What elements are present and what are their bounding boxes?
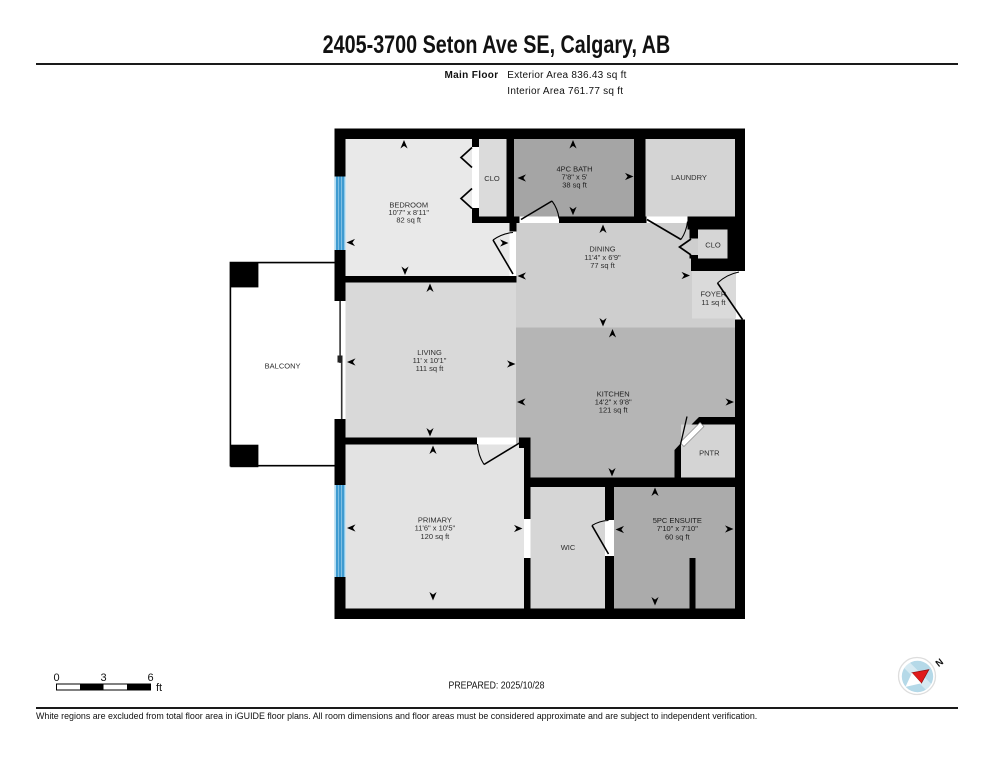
svg-text:38 sq ft: 38 sq ft [562,181,588,190]
svg-text:LAUNDRY: LAUNDRY [671,173,707,182]
svg-text:111 sq ft: 111 sq ft [416,364,445,373]
svg-text:120 sq ft: 120 sq ft [421,532,451,541]
svg-text:121 sq ft: 121 sq ft [599,406,629,415]
svg-text:N: N [934,657,946,670]
svg-text:CLO: CLO [705,240,721,249]
svg-text:PNTR: PNTR [699,449,720,458]
svg-text:PREPARED: 2025/10/28: PREPARED: 2025/10/28 [449,681,545,692]
svg-text:11 sq ft: 11 sq ft [701,298,726,307]
svg-text:0: 0 [53,672,59,684]
svg-text:ft: ft [156,682,162,694]
svg-text:CLO: CLO [484,174,500,183]
svg-text:77 sq ft: 77 sq ft [590,261,616,270]
svg-text:6: 6 [147,672,153,684]
svg-text:82 sq ft: 82 sq ft [396,215,422,224]
svg-text:BALCONY: BALCONY [265,361,301,370]
svg-text:60 sq ft: 60 sq ft [665,532,691,541]
svg-text:3: 3 [100,672,106,684]
svg-text:WIC: WIC [561,543,576,552]
